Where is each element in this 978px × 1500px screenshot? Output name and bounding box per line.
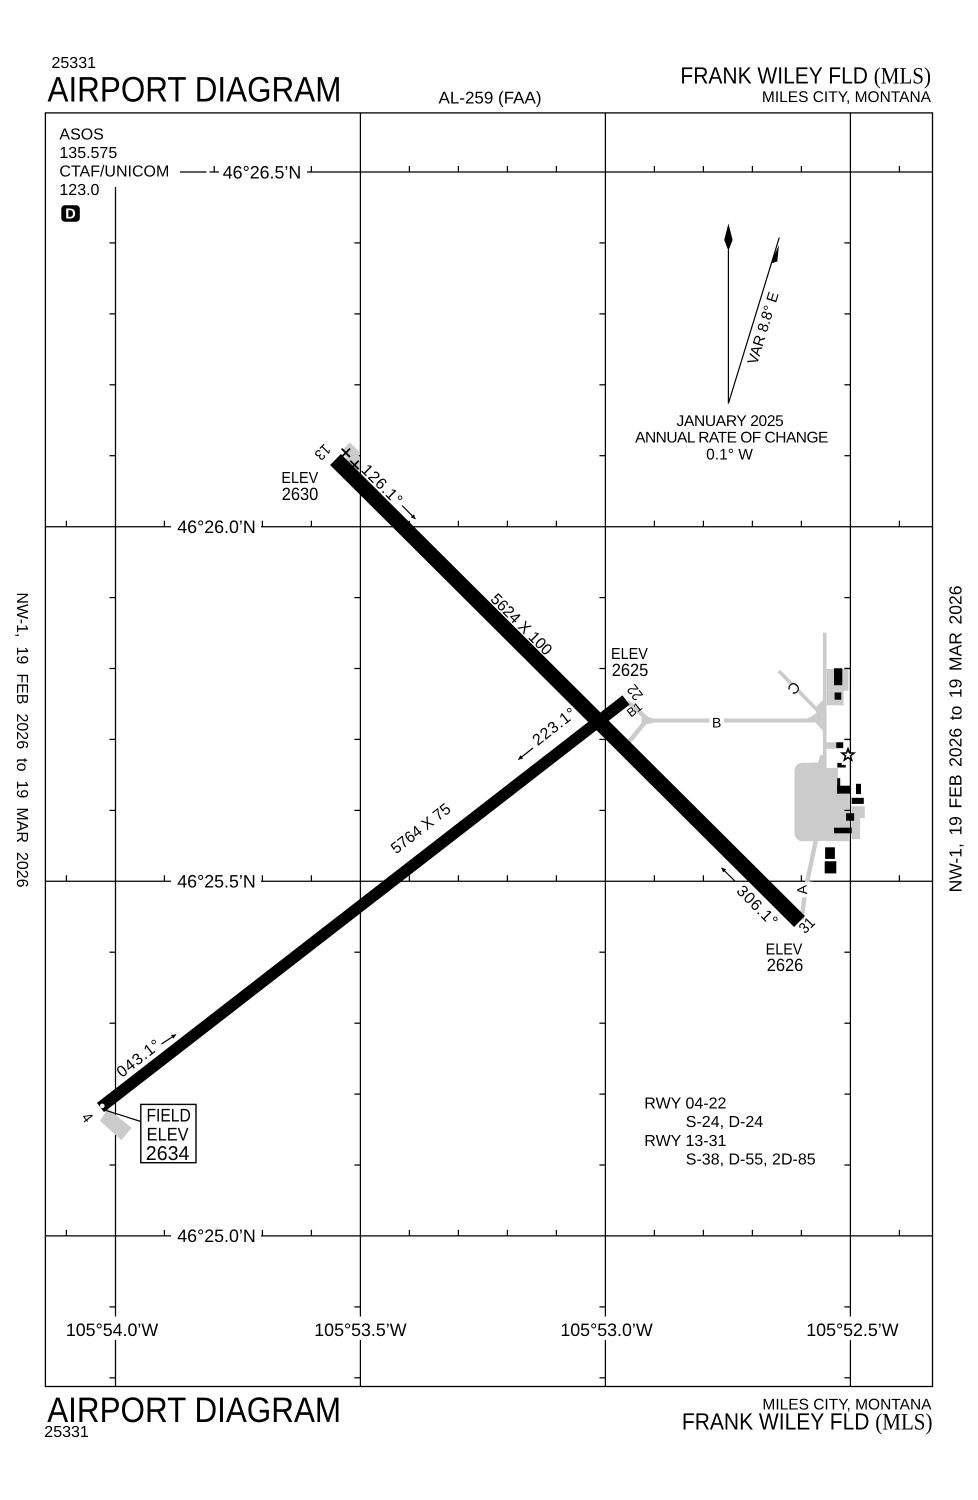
svg-text:FIELD: FIELD [146,1105,190,1126]
svg-text:22: 22 [624,681,647,703]
svg-text:AL-259 (FAA): AL-259 (FAA) [439,89,542,108]
svg-text:NW-1, 19 FEB 2026 to 19 MAR: NW-1, 19 FEB 2026 to 19 MAR 2026 [946,586,966,893]
svg-text:ELEV: ELEV [147,1124,190,1145]
svg-text:46°26.5’N: 46°26.5’N [223,162,301,182]
svg-text:5764 X 75: 5764 X 75 [388,801,454,858]
svg-text:105°52.5’W: 105°52.5’W [806,1320,898,1340]
svg-text:46°26.0’N: 46°26.0’N [177,517,255,537]
svg-text:D: D [65,207,75,223]
svg-text:2634: 2634 [146,1143,190,1165]
svg-text:105°54.0’W: 105°54.0’W [66,1320,158,1340]
svg-text:AIRPORT DIAGRAM: AIRPORT DIAGRAM [47,1390,341,1430]
svg-text:S-38, D-55, 2D-85: S-38, D-55, 2D-85 [686,1152,816,1169]
svg-text:JANUARY 2025: JANUARY 2025 [677,413,784,430]
svg-text:ANNUAL RATE OF CHANGE: ANNUAL RATE OF CHANGE [635,430,828,447]
svg-text:105°53.5’W: 105°53.5’W [314,1320,406,1340]
svg-text:2626: 2626 [767,955,804,975]
svg-text:FRANK WILEY FLD (MLS): FRANK WILEY FLD (MLS) [682,1409,933,1436]
svg-text:2630: 2630 [282,484,319,504]
svg-text:AIRPORT DIAGRAM: AIRPORT DIAGRAM [48,70,342,110]
svg-text:135.575: 135.575 [59,145,117,162]
svg-text:46°25.0’N: 46°25.0’N [177,1226,255,1246]
svg-text:105°53.0’W: 105°53.0’W [560,1320,652,1340]
svg-text:25331: 25331 [44,1424,89,1441]
svg-text:2625: 2625 [612,660,649,680]
svg-text:4: 4 [78,1110,96,1127]
svg-text:13: 13 [311,440,334,463]
svg-text:CTAF/UNICOM: CTAF/UNICOM [59,164,169,181]
svg-text:MILES CITY, MONTANA: MILES CITY, MONTANA [762,89,932,106]
svg-text:S-24, D-24: S-24, D-24 [686,1114,763,1131]
svg-text:RWY 13-31: RWY 13-31 [644,1133,726,1150]
svg-text:RWY 04-22: RWY 04-22 [644,1096,726,1113]
svg-text:B: B [712,714,721,730]
svg-text:VAR 8.8° E: VAR 8.8° E [744,290,782,367]
svg-text:A: A [793,884,810,895]
svg-text:0.1° W: 0.1° W [706,446,753,463]
svg-text:NW-1, 19 FEB 2026 to 19 MAR: NW-1, 19 FEB 2026 to 19 MAR 2026 [13,592,30,887]
svg-text:46°25.5’N: 46°25.5’N [177,872,255,892]
svg-text:FRANK WILEY FLD (MLS): FRANK WILEY FLD (MLS) [680,63,931,90]
svg-text:ASOS: ASOS [59,127,103,144]
svg-text:123.0: 123.0 [59,182,99,199]
